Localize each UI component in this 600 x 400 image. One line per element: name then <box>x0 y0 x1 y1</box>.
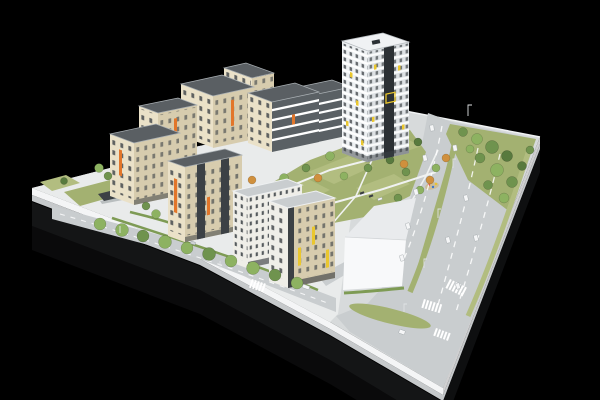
highrise-tower <box>342 33 409 162</box>
play-equipment <box>432 186 434 188</box>
balcony-accent <box>298 247 301 266</box>
stair-tower <box>221 158 229 235</box>
yellow-accent <box>361 140 364 146</box>
tree <box>507 177 518 188</box>
tree <box>491 164 504 177</box>
stair-tower <box>197 163 205 240</box>
tree <box>502 151 513 162</box>
apartment-block-b7 <box>168 149 242 242</box>
car <box>423 155 428 162</box>
balcony-accent <box>231 100 234 127</box>
play-equipment <box>435 183 437 185</box>
tree <box>302 164 310 172</box>
yellow-accent <box>356 100 359 106</box>
windows <box>234 193 248 262</box>
tree <box>326 152 335 161</box>
windows <box>289 201 334 281</box>
tree <box>61 178 68 185</box>
balcony-accent <box>174 178 177 213</box>
car <box>430 125 435 131</box>
tree <box>137 230 149 242</box>
tree <box>116 224 129 237</box>
tree <box>104 172 112 180</box>
tree <box>526 146 534 154</box>
tree <box>247 262 260 275</box>
tree <box>95 164 104 173</box>
tree <box>364 164 372 172</box>
tower-floors <box>342 43 368 160</box>
autumn-tree <box>248 176 256 184</box>
yellow-accent <box>402 124 405 130</box>
windows <box>186 158 241 236</box>
tree <box>269 269 281 281</box>
tree <box>459 128 468 137</box>
tree <box>203 248 216 261</box>
yellow-accent <box>398 65 401 71</box>
tree <box>466 145 474 153</box>
architectural-model-photo <box>0 0 600 400</box>
tree <box>472 134 483 145</box>
balcony-accent <box>119 149 122 176</box>
tree <box>402 168 410 176</box>
apartment-block-b4 <box>248 83 319 152</box>
tree <box>340 172 348 180</box>
tree <box>432 164 440 172</box>
autumn-tree <box>400 160 408 168</box>
tree <box>225 255 237 267</box>
tree <box>159 236 172 249</box>
massing-block-front <box>343 237 406 290</box>
car <box>453 145 458 152</box>
balcony-accent <box>326 249 329 268</box>
autumn-tree <box>426 176 434 184</box>
yellow-accent <box>346 120 349 126</box>
yellow-accent <box>372 117 375 123</box>
tree <box>152 210 161 219</box>
tree <box>484 181 493 190</box>
balcony-accent <box>292 114 295 125</box>
balcony-accent <box>207 197 210 216</box>
tree <box>142 202 150 210</box>
tree <box>394 194 402 202</box>
corner-panel <box>288 207 294 288</box>
tree <box>486 141 499 154</box>
tree <box>475 153 485 163</box>
yellow-accent <box>374 64 377 70</box>
tree <box>518 162 527 171</box>
windows <box>249 95 271 147</box>
yellow-accent <box>350 72 353 78</box>
tree <box>414 138 422 146</box>
autumn-tree <box>442 154 450 162</box>
model-photo-stage <box>0 0 600 400</box>
balcony-accent <box>312 226 315 245</box>
windows <box>270 204 287 280</box>
tree <box>94 218 106 230</box>
autumn-tree <box>314 174 322 182</box>
tree <box>499 193 509 203</box>
tree <box>291 277 303 289</box>
